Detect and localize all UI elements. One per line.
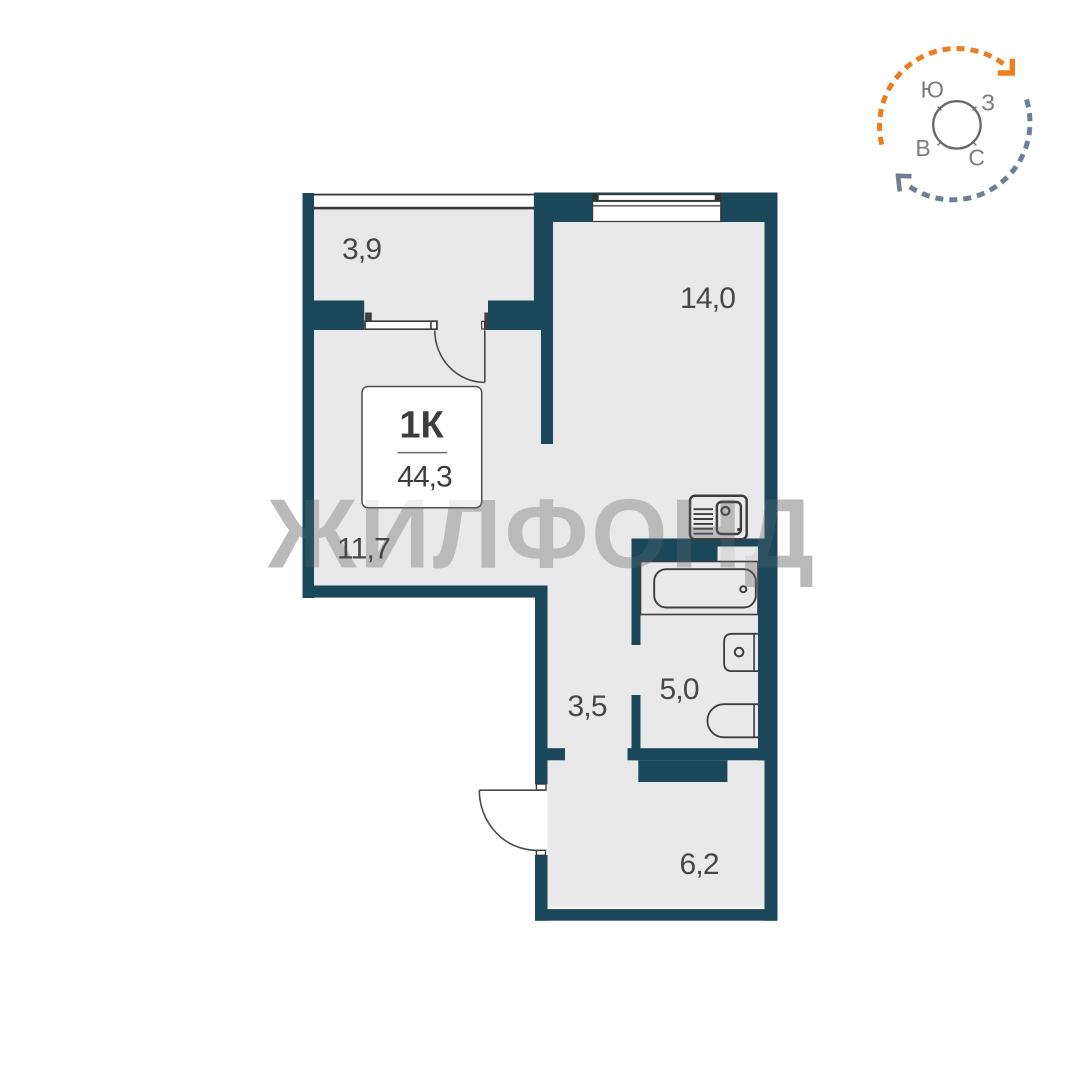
svg-text:6,2: 6,2 xyxy=(680,848,719,881)
svg-text:11,7: 11,7 xyxy=(337,533,390,566)
svg-text:З: З xyxy=(981,90,995,116)
svg-text:В: В xyxy=(915,135,930,161)
svg-text:3,9: 3,9 xyxy=(342,233,381,266)
svg-text:1К: 1К xyxy=(399,405,444,447)
svg-text:44,3: 44,3 xyxy=(397,461,452,494)
svg-text:14,0: 14,0 xyxy=(680,282,735,315)
svg-text:5,0: 5,0 xyxy=(660,673,699,706)
svg-text:3,5: 3,5 xyxy=(568,690,607,723)
svg-text:С: С xyxy=(968,145,985,171)
svg-text:Ю: Ю xyxy=(921,77,944,103)
